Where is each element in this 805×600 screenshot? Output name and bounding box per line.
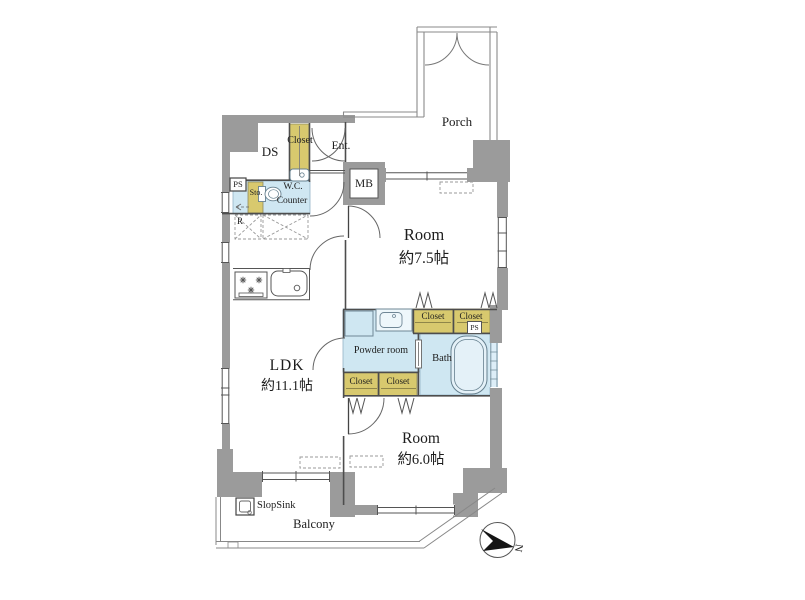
ldk-size: 約11.1帖 <box>243 380 331 394</box>
room2-name: Room <box>379 431 463 447</box>
burner-icon <box>240 277 246 283</box>
porch-doors <box>425 33 489 65</box>
wc-label-line2: Counter <box>267 197 317 207</box>
burner-icon <box>248 287 254 293</box>
room1-door-arc <box>348 206 380 238</box>
kitchen-fixtures <box>235 269 307 299</box>
bath-label: Bath <box>426 354 458 365</box>
room2-door-arc <box>348 398 384 434</box>
slop-sink-label: SlopSink <box>257 501 307 512</box>
closet-door-mark <box>416 293 432 308</box>
room1-size: 約7.5帖 <box>382 251 466 267</box>
stove <box>235 272 267 298</box>
room2-balcony-window <box>377 505 455 516</box>
slop-sink-icon <box>236 498 254 515</box>
ac-space-room1 <box>440 182 473 193</box>
closet-bottom-left-label: Closet <box>344 377 378 386</box>
storage-label: Sto. <box>246 189 266 197</box>
powder-room-label: Powder room <box>344 346 418 356</box>
burner-icon <box>256 277 262 283</box>
entrance-closet-label: Closet <box>277 136 323 146</box>
kitchen-sink <box>271 271 307 296</box>
ldk-balcony-window <box>262 471 330 483</box>
closet-top-right-label: Closet <box>452 312 490 321</box>
entrance-label: Ent. <box>321 141 361 153</box>
bathtub <box>451 336 487 394</box>
room1-porch-window <box>386 172 467 181</box>
closet-top-left-label: Closet <box>414 312 452 321</box>
compass-north-label: N <box>512 543 525 553</box>
room1-side-window <box>497 217 508 268</box>
ldk-name: LDK <box>255 358 319 374</box>
ldk-door-arc <box>310 236 344 270</box>
floor-plan-page: N DS Closet Ent. PS Sto. W.C. Counter R … <box>0 0 805 600</box>
ps-closet-label: PS <box>468 324 481 332</box>
bath-window <box>490 343 499 387</box>
refrigerator-label: R <box>237 217 249 226</box>
faucet-icon <box>283 269 290 273</box>
porch-door-right <box>457 33 489 65</box>
compass: N <box>480 523 525 558</box>
ac-space-ldk <box>300 457 340 468</box>
closet-door-mark <box>349 398 365 413</box>
closet-door-mark <box>398 398 414 413</box>
room1-name: Room <box>382 227 466 244</box>
porch-door-left <box>425 33 457 65</box>
meter-box-label: MB <box>349 179 379 191</box>
room2-size: 約6.0帖 <box>379 453 463 468</box>
balcony-drain <box>228 542 238 548</box>
wc-label-line1: W.C. <box>277 183 309 193</box>
floorplan-drawing: N <box>0 0 805 600</box>
balcony-label: Balcony <box>288 518 340 531</box>
closet-bottom-right-label: Closet <box>380 377 416 386</box>
ps-upper-label: PS <box>230 180 246 189</box>
porch-wall-block <box>473 140 510 182</box>
porch-label: Porch <box>432 115 482 128</box>
ds-label: DS <box>250 145 290 158</box>
entry-step-lines <box>310 171 345 174</box>
